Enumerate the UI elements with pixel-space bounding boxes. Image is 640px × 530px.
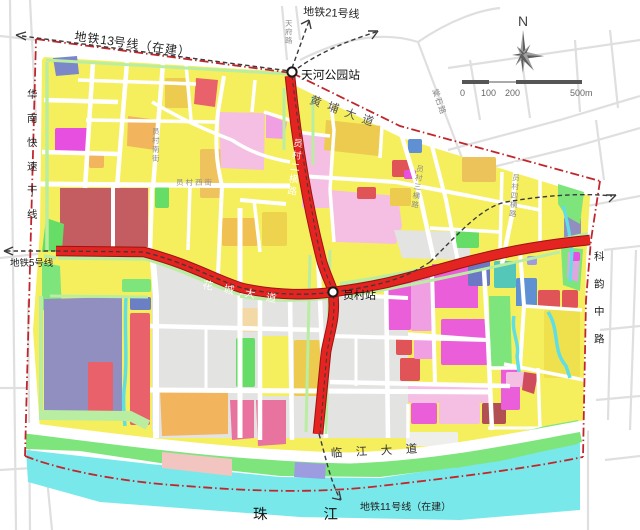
svg-text:100: 100 xyxy=(481,88,496,98)
svg-text:5: 5 xyxy=(29,258,35,269)
svg-text:200: 200 xyxy=(505,88,520,98)
svg-text:500m: 500m xyxy=(570,88,593,98)
svg-text:0: 0 xyxy=(460,88,465,98)
svg-text:N: N xyxy=(518,13,528,29)
svg-text:11: 11 xyxy=(380,502,391,513)
svg-text:13: 13 xyxy=(99,33,115,49)
svg-text:21: 21 xyxy=(325,7,338,20)
